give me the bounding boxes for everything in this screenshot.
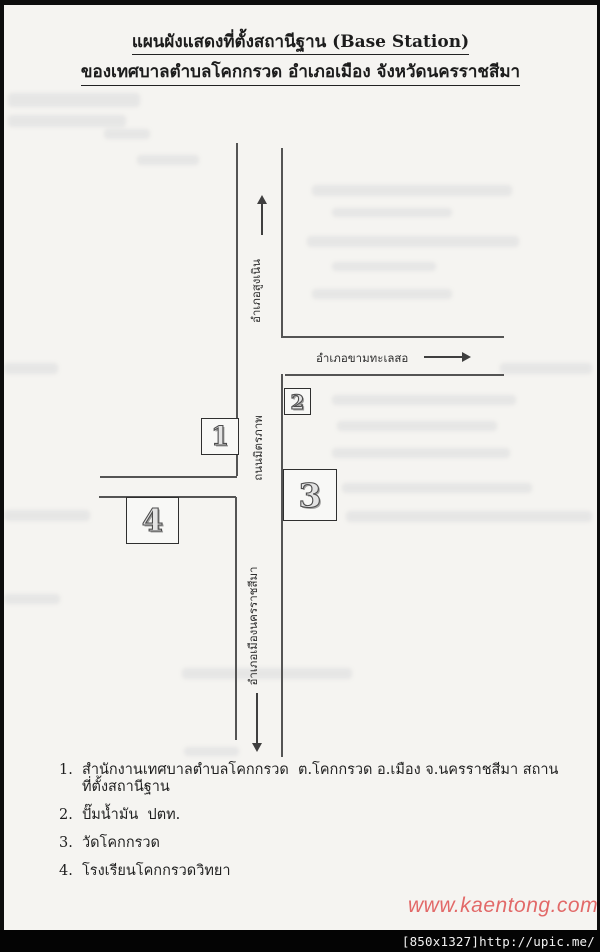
marker-number: 4 bbox=[142, 503, 164, 539]
bleed-through-smudge bbox=[184, 747, 239, 756]
legend-item-text: ปั๊มน้ำมัน ปตท. bbox=[82, 807, 180, 824]
legend-item-1: 1. สำนักงานเทศบาลตำบลโคกกรวด ต.โคกกรวด อ… bbox=[59, 762, 559, 797]
branch-road-edge-top bbox=[281, 336, 504, 338]
arrow-head bbox=[252, 743, 262, 752]
legend-item-text: สำนักงานเทศบาลตำบลโคกกรวด ต.โคกกรวด อ.เม… bbox=[82, 762, 559, 797]
bleed-through-smudge bbox=[182, 668, 352, 679]
arrow-head bbox=[257, 195, 267, 204]
legend-item-4: 4. โรงเรียนโคกกรวดวิทยา bbox=[59, 863, 559, 880]
watermark-url: www.kaentong.com bbox=[408, 894, 597, 918]
bleed-through-smudge bbox=[332, 208, 452, 217]
bleed-through-smudge bbox=[307, 236, 519, 247]
bleed-through-smudge bbox=[500, 363, 592, 374]
title-line-1: แผนผังแสดงที่ตั้งสถานีฐาน (Base Station) bbox=[132, 32, 469, 55]
bleed-through-smudge bbox=[332, 262, 436, 271]
marker-number: 3 bbox=[299, 476, 322, 515]
road-edge-right-lower bbox=[281, 374, 283, 757]
side-road-edge-top bbox=[100, 476, 237, 478]
title-line-2: ของเทศบาลตำบลโคกกรวด อำเภอเมือง จังหวัดน… bbox=[81, 62, 520, 85]
legend-item-3: 3. วัดโคกกรวด bbox=[59, 835, 559, 852]
scanned-image-frame: แผนผังแสดงที่ตั้งสถานีฐาน (Base Station)… bbox=[0, 0, 600, 952]
page-title: แผนผังแสดงที่ตั้งสถานีฐาน (Base Station)… bbox=[4, 32, 597, 86]
east-arrow-icon bbox=[424, 352, 463, 362]
bleed-through-smudge bbox=[332, 395, 516, 405]
bleed-through-smudge bbox=[332, 448, 510, 458]
bleed-through-smudge bbox=[8, 115, 126, 127]
road-label-top-destination: อำเภอสูงเนิน bbox=[249, 236, 263, 346]
arrow-shaft bbox=[256, 693, 258, 744]
resolution-label: [850x1327] bbox=[402, 934, 479, 949]
road-edge-left-lower bbox=[235, 497, 237, 740]
south-arrow-icon bbox=[252, 693, 262, 744]
legend-item-2: 2. ปั๊มน้ำมัน ปตท. bbox=[59, 807, 559, 824]
bleed-through-smudge bbox=[137, 155, 199, 165]
road-label-road-name: ถนนมิตรภาพ bbox=[251, 398, 265, 498]
marker-number: 1 bbox=[211, 422, 229, 452]
legend-item-text: วัดโคกกรวด bbox=[82, 835, 160, 852]
host-url: http://upic.me/ bbox=[479, 934, 595, 949]
legend-item-number: 1. bbox=[59, 762, 82, 797]
legend-item-number: 4. bbox=[59, 863, 82, 880]
bleed-through-smudge bbox=[312, 289, 452, 299]
road-label-branch-destination: อำเภอขามทะเลสอ bbox=[316, 350, 408, 368]
map-marker-4: 4 bbox=[126, 497, 179, 544]
north-arrow-icon bbox=[257, 203, 267, 235]
bleed-through-smudge bbox=[337, 421, 497, 431]
document-page: แผนผังแสดงที่ตั้งสถานีฐาน (Base Station)… bbox=[4, 5, 597, 930]
road-edge-right-upper bbox=[281, 148, 283, 337]
bleed-through-smudge bbox=[342, 483, 532, 493]
arrow-head bbox=[462, 352, 471, 362]
bleed-through-smudge bbox=[312, 185, 512, 196]
marker-number: 2 bbox=[291, 390, 305, 414]
bleed-through-smudge bbox=[4, 594, 60, 604]
bleed-through-smudge bbox=[346, 511, 592, 522]
arrow-shaft bbox=[424, 356, 463, 358]
bleed-through-smudge bbox=[8, 93, 140, 107]
map-marker-3: 3 bbox=[283, 469, 337, 521]
legend-item-text: โรงเรียนโคกกรวดวิทยา bbox=[82, 863, 231, 880]
bleed-through-smudge bbox=[104, 129, 150, 139]
branch-road-edge-bottom bbox=[285, 374, 504, 376]
map-marker-1: 1 bbox=[201, 418, 239, 455]
bleed-through-smudge bbox=[4, 510, 90, 521]
legend: 1. สำนักงานเทศบาลตำบลโคกกรวด ต.โคกกรวด อ… bbox=[59, 762, 559, 891]
image-host-status-bar: [850x1327] http://upic.me/ bbox=[0, 930, 600, 952]
legend-item-number: 3. bbox=[59, 835, 82, 852]
map-marker-2: 2 bbox=[284, 388, 311, 415]
legend-item-number: 2. bbox=[59, 807, 82, 824]
bleed-through-smudge bbox=[4, 363, 58, 374]
road-label-bottom-destination: อำเภอเมืองนครราชสีมา bbox=[246, 556, 260, 696]
arrow-shaft bbox=[261, 203, 263, 235]
